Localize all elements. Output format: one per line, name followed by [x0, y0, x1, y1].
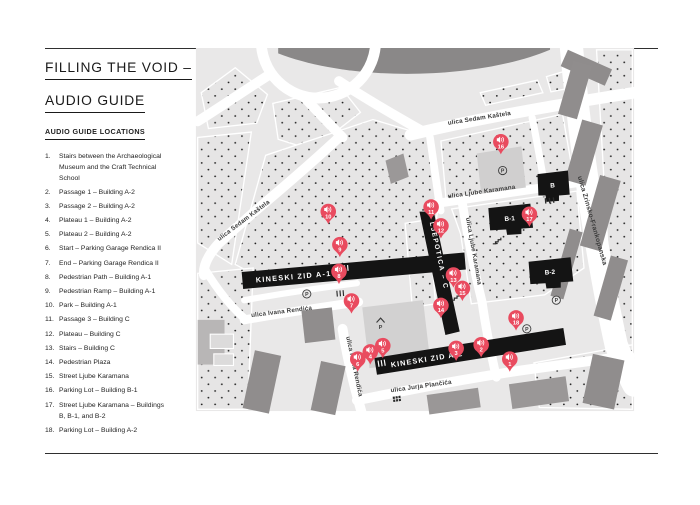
- pin-number: 2: [480, 348, 483, 354]
- page-title: FILLING THE VOID – AUDIO GUIDE: [45, 60, 177, 113]
- item-number: 3.: [45, 201, 59, 212]
- item-number: 18.: [45, 425, 59, 436]
- item-label: Stairs between the Archaeological Museum…: [59, 151, 167, 184]
- audio-guide-item: 14.Pedestrian Plaza: [45, 357, 177, 368]
- pin-number: 16: [498, 145, 504, 151]
- audio-guide-item: 11.Passage 3 – Building C: [45, 314, 177, 325]
- audio-guide-item: 8.Pedestrian Path – Building A-1: [45, 272, 177, 283]
- item-label: Parking Lot – Building A-2: [59, 425, 167, 436]
- pin-number: 15: [459, 291, 466, 297]
- parking-icon: P: [523, 325, 531, 333]
- item-label: Plateau 2 – Building A-2: [59, 229, 167, 240]
- item-number: 17.: [45, 400, 59, 422]
- pin-number: 7: [350, 304, 353, 310]
- item-number: 16.: [45, 385, 59, 396]
- parking-icon: P: [303, 290, 311, 298]
- item-number: 9.: [45, 286, 59, 297]
- locations-heading: AUDIO GUIDE LOCATIONS: [45, 127, 145, 140]
- item-label: Street Ljube Karamana – Buildings B, B-1…: [59, 400, 167, 422]
- city-map: KINESKI ZID A-1 KINESKI ZID A-2 LJEPOTIC…: [170, 48, 660, 454]
- pin-number: 10: [325, 214, 331, 220]
- item-number: 8.: [45, 272, 59, 283]
- item-number: 13.: [45, 343, 59, 354]
- item-number: 15.: [45, 371, 59, 382]
- svg-text:P: P: [525, 327, 529, 333]
- svg-text:P: P: [555, 298, 559, 304]
- pin-number: 13: [450, 278, 456, 284]
- audio-guide-item: 1.Stairs between the Archaeological Muse…: [45, 151, 177, 184]
- audio-guide-item: 15.Street Ljube Karamana: [45, 371, 177, 382]
- pin-number: 14: [438, 308, 445, 314]
- item-number: 2.: [45, 187, 59, 198]
- audio-guide-item: 5.Plateau 2 – Building A-2: [45, 229, 177, 240]
- item-number: 6.: [45, 243, 59, 254]
- audio-guide-item: 17.Street Ljube Karamana – Buildings B, …: [45, 400, 177, 422]
- item-label: Passage 1 – Building A-2: [59, 187, 167, 198]
- building-label-b2: B-2: [545, 269, 556, 277]
- audio-guide-item: 12.Plateau – Building C: [45, 329, 177, 340]
- item-label: Pedestrian Plaza: [59, 357, 167, 368]
- building-label-b: B: [550, 182, 555, 189]
- pin-number: 18: [513, 321, 519, 327]
- item-label: Park – Building A-1: [59, 300, 167, 311]
- audio-guide-item: 7.End – Parking Garage Rendica II: [45, 258, 177, 269]
- audio-guide-item: 9.Pedestrian Ramp – Building A-1: [45, 286, 177, 297]
- item-label: Plateau – Building C: [59, 329, 167, 340]
- item-label: Parking Lot – Building B-1: [59, 385, 167, 396]
- item-number: 1.: [45, 151, 59, 184]
- item-label: End – Parking Garage Rendica II: [59, 258, 167, 269]
- pin-number: 17: [526, 217, 532, 223]
- item-number: 7.: [45, 258, 59, 269]
- item-label: Passage 2 – Building A-2: [59, 201, 167, 212]
- svg-text:P: P: [305, 292, 309, 298]
- item-label: Passage 3 – Building C: [59, 314, 167, 325]
- pin-number: 11: [428, 210, 435, 216]
- pin-number: 6: [356, 362, 359, 368]
- item-label: Start – Parking Garage Rendica II: [59, 243, 167, 254]
- item-number: 12.: [45, 329, 59, 340]
- item-label: Stairs – Building C: [59, 343, 167, 354]
- svg-text:P: P: [379, 325, 383, 331]
- audio-guide-item: 13.Stairs – Building C: [45, 343, 177, 354]
- audio-guide-item: 10.Park – Building A-1: [45, 300, 177, 311]
- item-label: Pedestrian Path – Building A-1: [59, 272, 167, 283]
- item-number: 11.: [45, 314, 59, 325]
- audio-guide-item: 2.Passage 1 – Building A-2: [45, 187, 177, 198]
- item-label: Street Ljube Karamana: [59, 371, 167, 382]
- item-label: Pedestrian Ramp – Building A-1: [59, 286, 167, 297]
- svg-text:P: P: [501, 168, 505, 174]
- item-number: 14.: [45, 357, 59, 368]
- item-number: 10.: [45, 300, 59, 311]
- item-number: 5.: [45, 229, 59, 240]
- stair-ticks-a1: [336, 290, 344, 296]
- audio-guide-item: 4.Plateau 1 – Building A-2: [45, 215, 177, 226]
- title-line-2: AUDIO GUIDE: [45, 93, 145, 113]
- building-label-b1: B-1: [504, 215, 515, 223]
- parking-icon: P: [552, 296, 560, 304]
- pin-number: 8: [337, 274, 340, 280]
- audio-guide-item: 18.Parking Lot – Building A-2: [45, 425, 177, 436]
- audio-guide-item: 6.Start – Parking Garage Rendica II: [45, 243, 177, 254]
- audio-guide-item: 16.Parking Lot – Building B-1: [45, 385, 177, 396]
- audio-guide-sidebar: FILLING THE VOID – AUDIO GUIDE AUDIO GUI…: [45, 60, 177, 439]
- pin-number: 3: [455, 351, 458, 357]
- item-number: 4.: [45, 215, 59, 226]
- audio-guide-list: 1.Stairs between the Archaeological Muse…: [45, 151, 177, 436]
- audio-guide-item: 3.Passage 2 – Building A-2: [45, 201, 177, 212]
- parking-icon: P: [499, 166, 507, 174]
- pin-number: 12: [438, 229, 444, 235]
- pin-number: 9: [338, 247, 341, 253]
- item-label: Plateau 1 – Building A-2: [59, 215, 167, 226]
